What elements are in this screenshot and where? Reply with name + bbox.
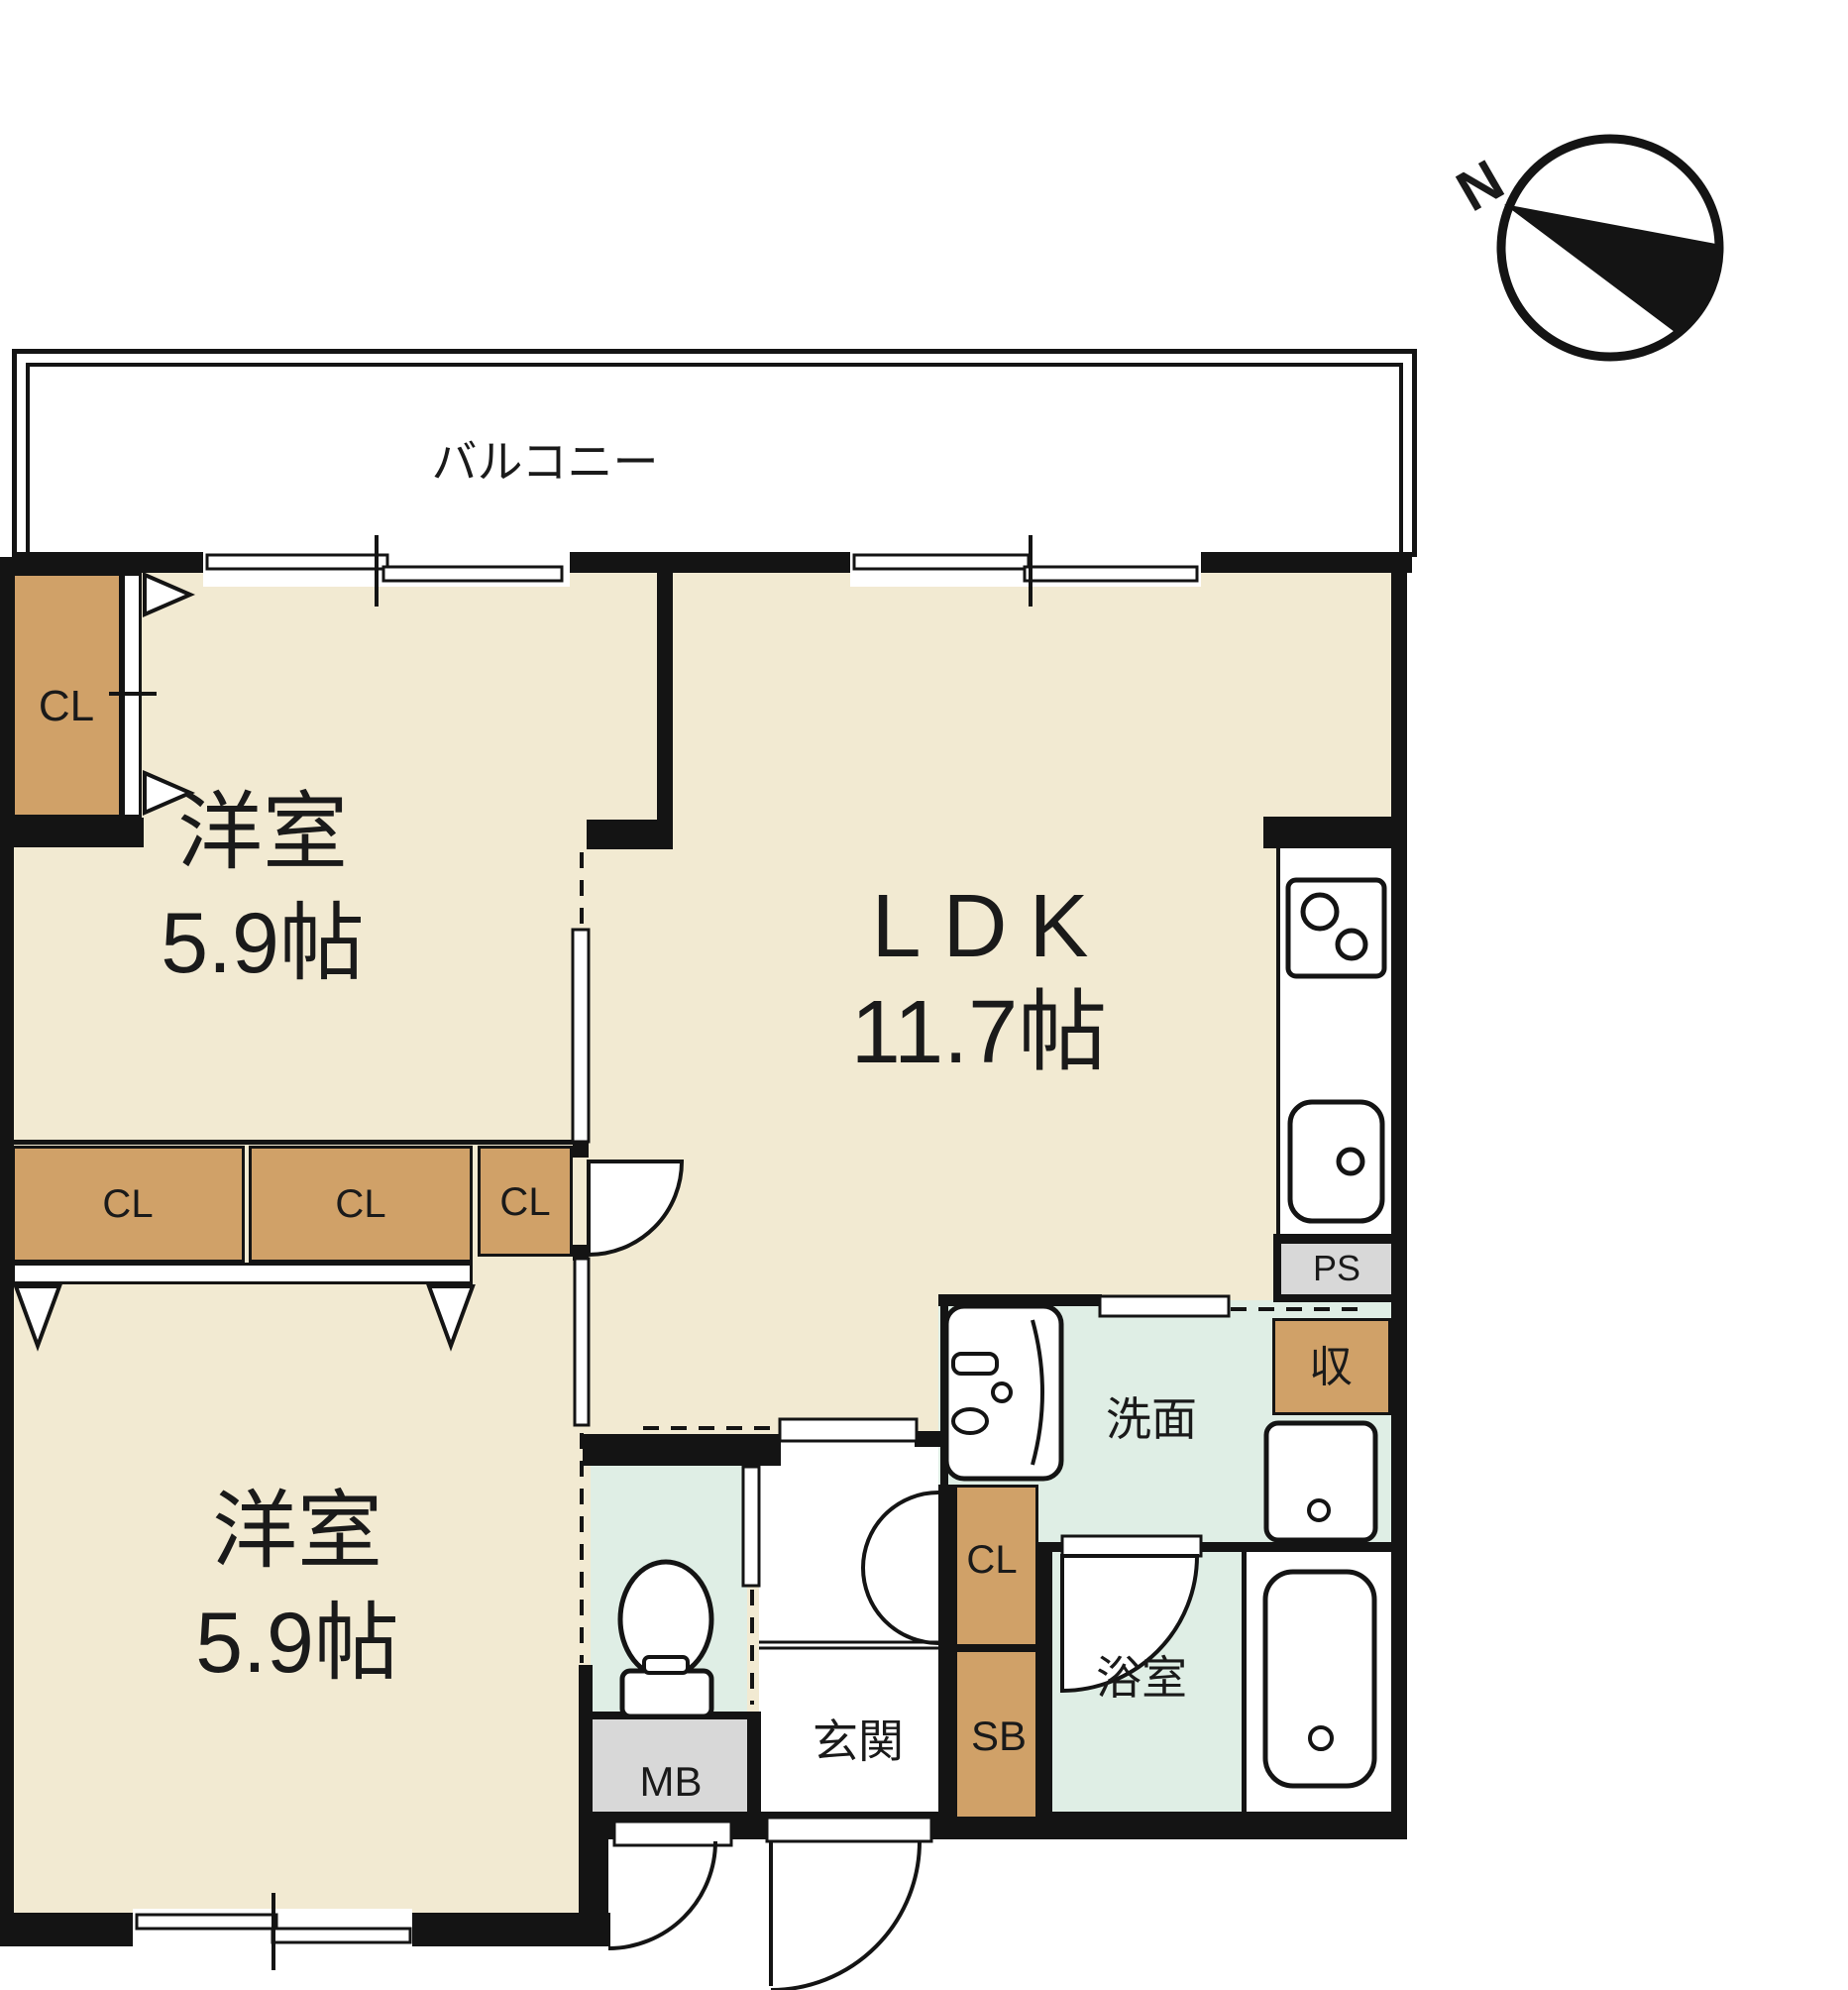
sliding-door-hall — [780, 1419, 917, 1441]
washbasin-icon — [946, 1306, 1061, 1479]
floor-plan: バルコニー 洋室 5.9帖 LDK 11.7帖 洋室 5.9帖 CL CL CL… — [0, 0, 1848, 1990]
window-top-ldk — [850, 535, 1201, 607]
kitchen-sink-icon — [1290, 1102, 1382, 1221]
entrance-door-swing — [771, 1841, 920, 1990]
shoe-box-label: SB — [971, 1715, 1027, 1757]
toilet-icon — [620, 1562, 711, 1716]
closet-top-left-label: CL — [39, 685, 94, 728]
storage-label: 収 — [1309, 1346, 1353, 1389]
washer-pan-icon — [1266, 1423, 1375, 1540]
door-room2-swing — [589, 1161, 682, 1255]
porch-door-swing — [608, 1841, 715, 1948]
closet-row-triangle-right — [429, 1286, 473, 1346]
room2-size: 5.9帖 — [195, 1601, 399, 1686]
room2-name: 洋室 — [212, 1489, 382, 1574]
toilet-door-leaf — [743, 1467, 759, 1586]
bathroom-door-leaf — [1062, 1536, 1201, 1556]
compass-icon — [1501, 139, 1721, 357]
closet-row-3-label: CL — [499, 1182, 550, 1222]
pipe-space-label: PS — [1313, 1251, 1360, 1286]
sliding-door-room1 — [573, 930, 589, 1142]
door-closet-entrance-swing — [863, 1492, 938, 1643]
meter-box-label: MB — [640, 1761, 703, 1803]
window-bottom-room2 — [133, 1893, 412, 1970]
closet-entrance-label: CL — [966, 1540, 1017, 1580]
window-top-room1 — [203, 535, 570, 607]
entrance-label: 玄関 — [813, 1718, 904, 1764]
entrance-step-line — [759, 1642, 938, 1648]
room1-size: 5.9帖 — [161, 901, 365, 986]
entrance-door-sill — [767, 1818, 931, 1841]
washroom-label: 洗面 — [1106, 1396, 1197, 1442]
stove-icon — [1288, 880, 1384, 976]
closet-row-triangle-left — [16, 1286, 59, 1346]
wall-corner-block-upper — [573, 1142, 589, 1158]
room1-name: 洋室 — [177, 790, 348, 875]
balcony-label: バルコニー — [431, 439, 658, 485]
ldk-size: 11.7帖 — [851, 988, 1108, 1077]
closet-row-2-label: CL — [335, 1184, 385, 1224]
ldk-name: LDK — [871, 882, 1110, 971]
closet-row-1-label: CL — [102, 1184, 153, 1224]
sliding-door-washroom — [1100, 1296, 1229, 1316]
closet-door-triangle-top — [145, 575, 190, 614]
bathroom-label: 浴室 — [1096, 1655, 1187, 1701]
bathtub-icon — [1265, 1572, 1374, 1786]
sliding-door-room2 — [575, 1259, 589, 1425]
